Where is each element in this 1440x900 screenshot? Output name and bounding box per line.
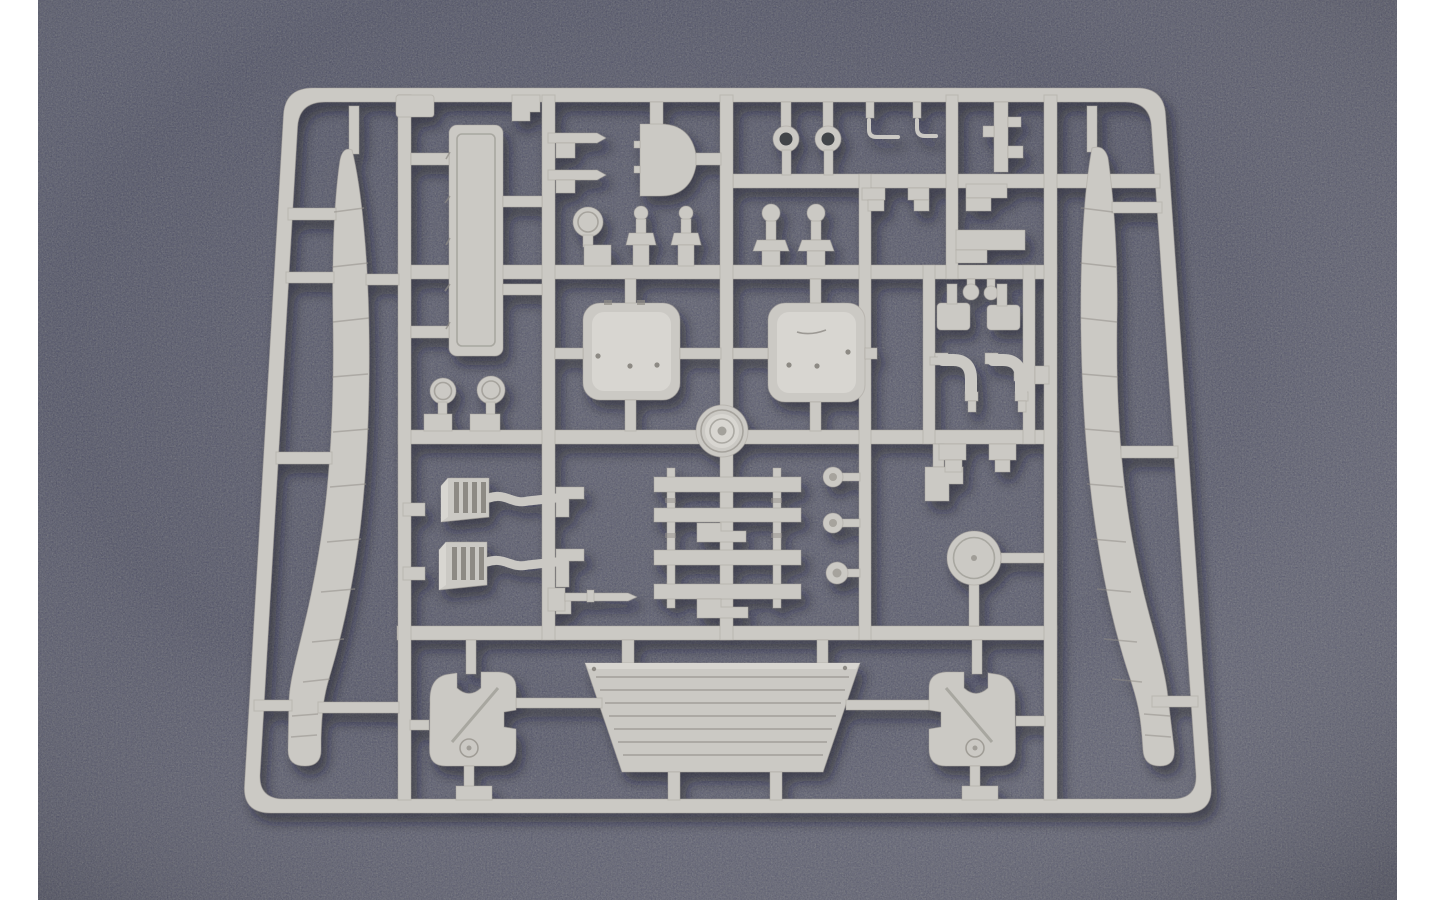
sprue-photo <box>0 0 1440 900</box>
runner <box>923 265 935 444</box>
eyelet-hole <box>780 133 793 146</box>
grille-face <box>439 542 446 590</box>
deck-bevel <box>585 663 860 669</box>
eyelet-hole <box>822 133 835 146</box>
gate-tab <box>913 102 921 118</box>
gate-tab <box>396 95 434 117</box>
runner <box>859 174 871 640</box>
hatch-plateau <box>592 312 671 391</box>
gate-tab <box>866 102 874 118</box>
photo-stage <box>0 0 1440 900</box>
runner <box>1044 95 1057 800</box>
runner <box>398 95 411 800</box>
runner <box>1023 265 1035 444</box>
